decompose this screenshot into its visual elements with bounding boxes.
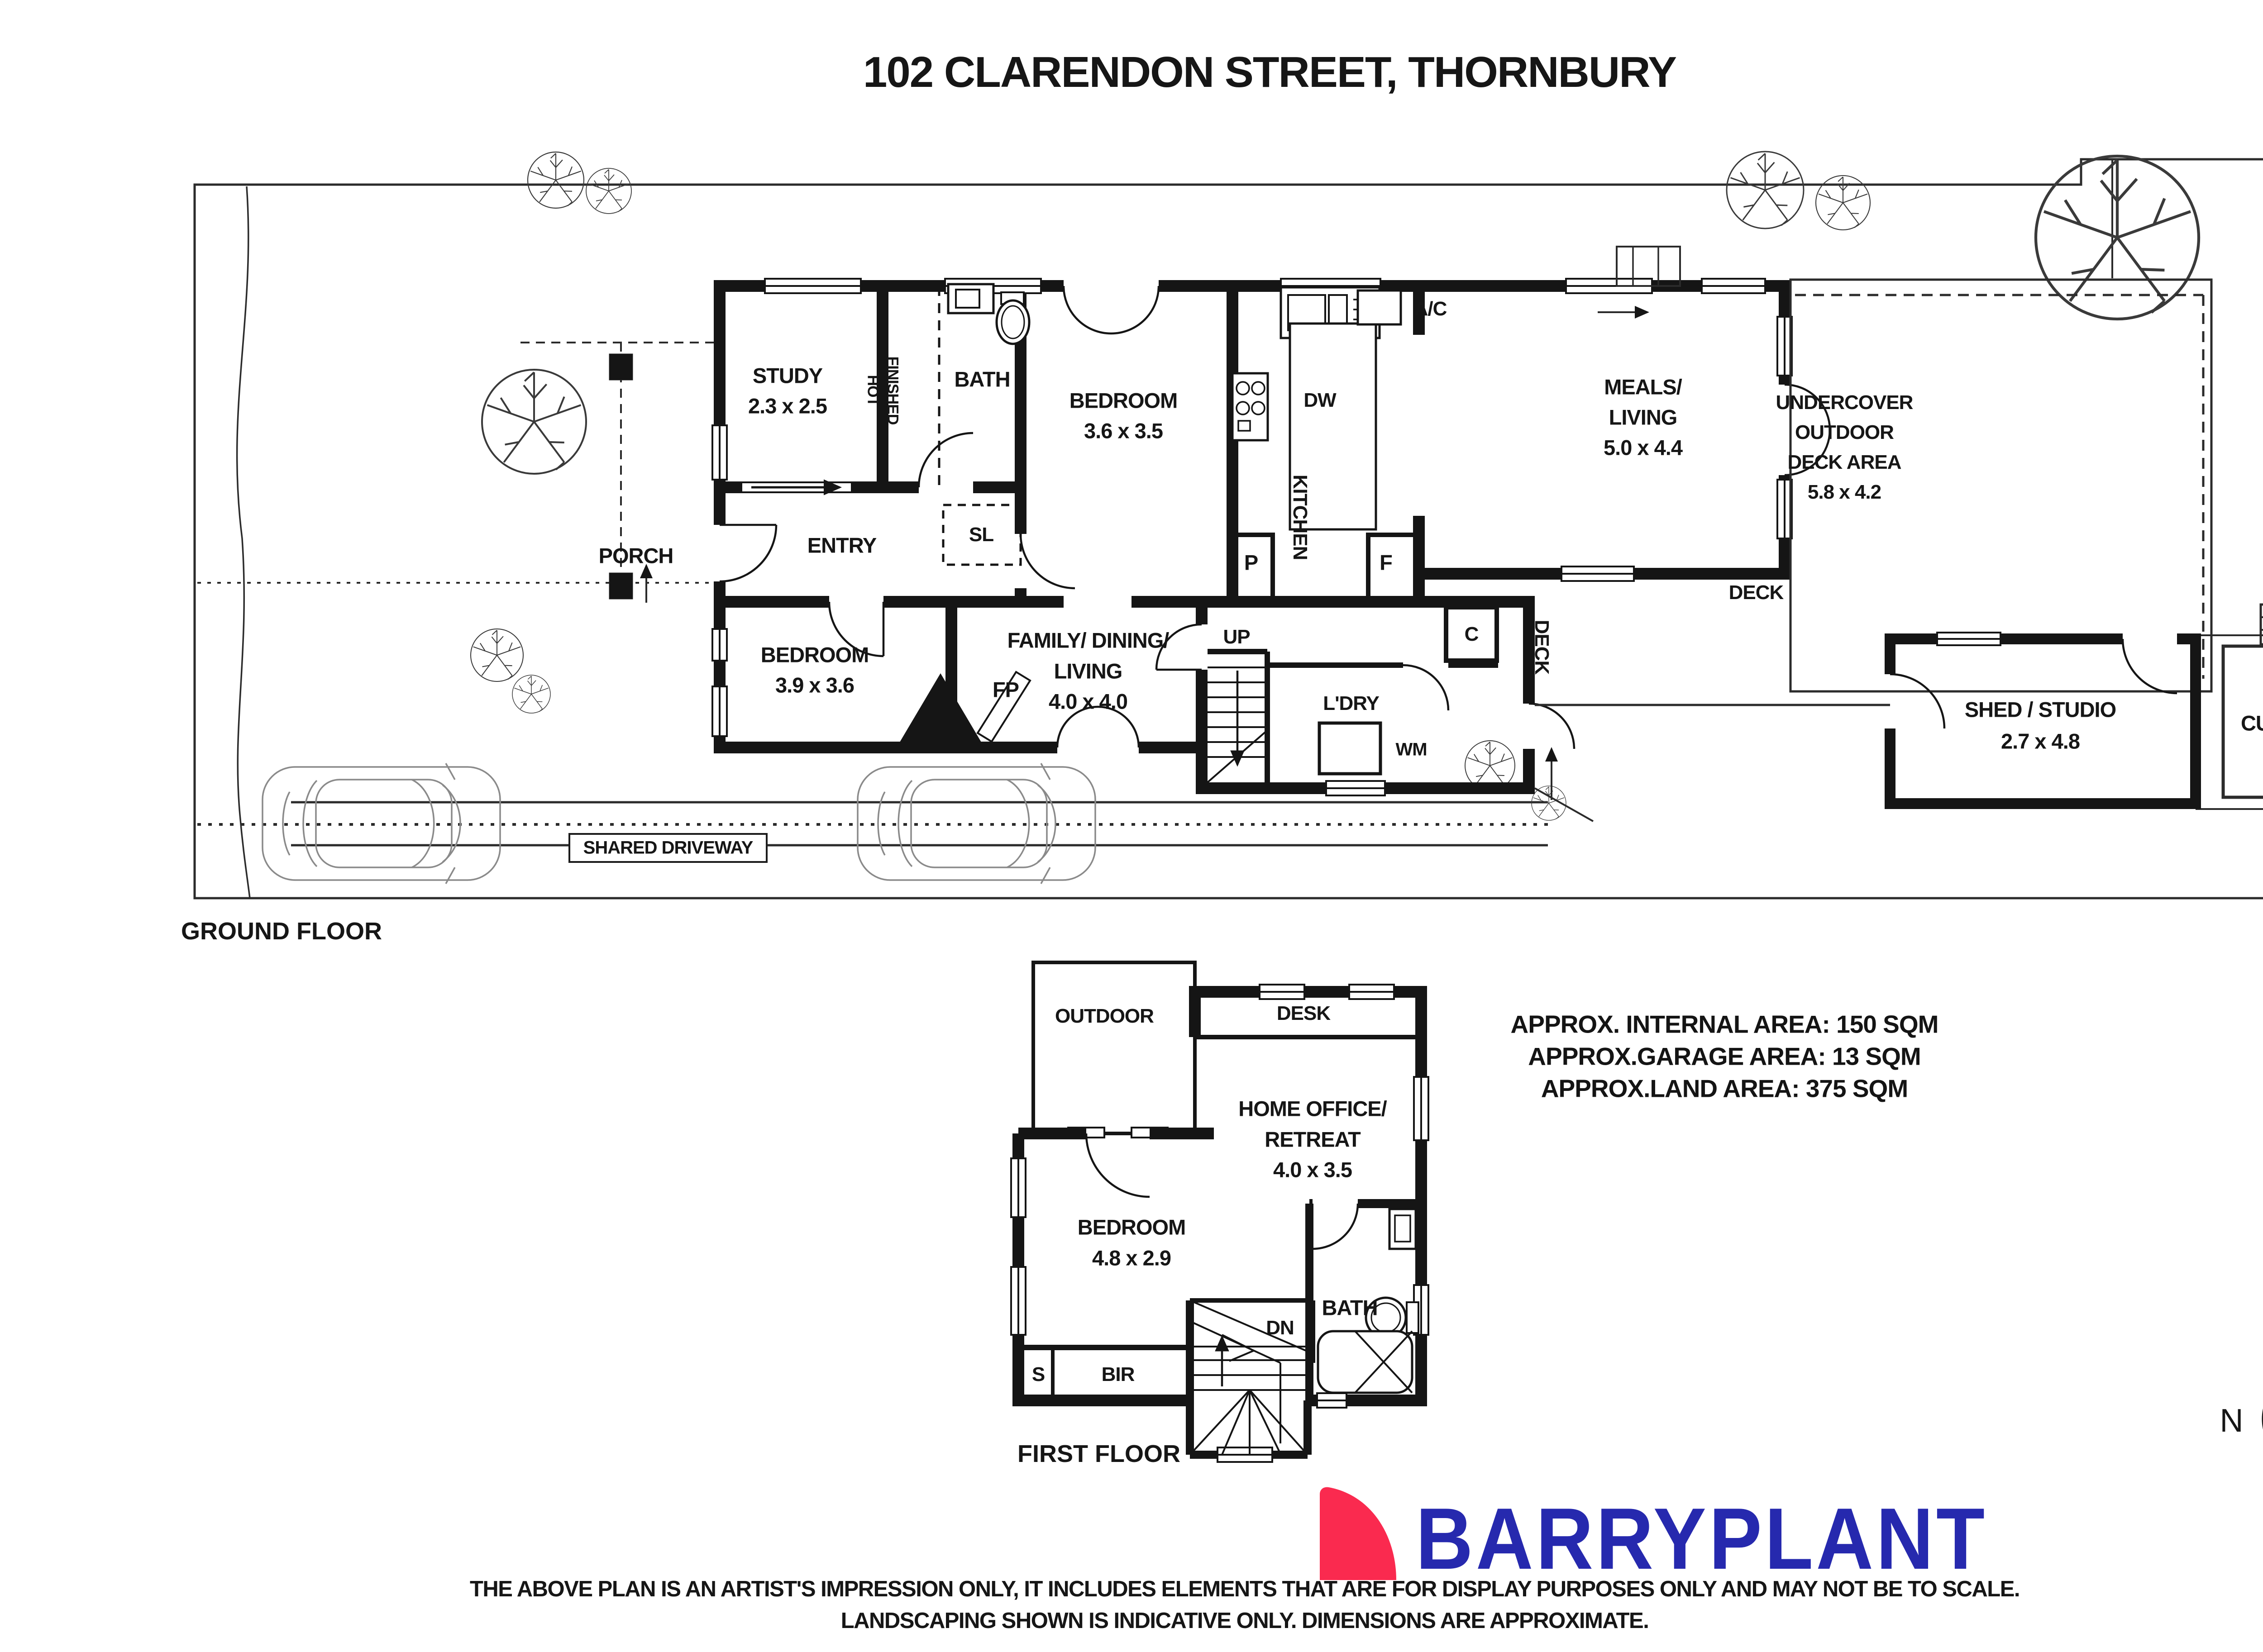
- room-family-line1: FAMILY/ DINING/: [1007, 628, 1169, 653]
- room-study-dims: 2.3 x 2.5: [748, 394, 827, 419]
- room-bedroom3-name: BEDROOM: [1078, 1215, 1185, 1240]
- label-deck-rear: DECK: [1729, 581, 1784, 604]
- room-undercover-line3: DECK AREA: [1788, 451, 1901, 474]
- approx-land-area: APPROX.LAND AREA: 375 SQM: [1511, 1073, 1938, 1105]
- label-shared-driveway: SHARED DRIVEWAY: [583, 838, 753, 858]
- label-dn: DN: [1266, 1317, 1294, 1339]
- ground-stairs: [1208, 667, 1267, 782]
- deck-lines: [1535, 635, 2263, 821]
- room-meals-line2: LIVING: [1609, 405, 1677, 430]
- room-homeoffice-line1: HOME OFFICE/: [1238, 1096, 1386, 1121]
- brand-logo-text: BARRYPLANT: [1416, 1489, 1987, 1589]
- ground-floor-section-label: GROUND FLOOR: [181, 917, 382, 945]
- label-pantry: P: [1244, 550, 1258, 575]
- room-homeoffice-line2: RETREAT: [1265, 1127, 1360, 1152]
- driveway: [197, 802, 1548, 862]
- approx-internal-area: APPROX. INTERNAL AREA: 150 SQM: [1511, 1009, 1938, 1041]
- room-meals-dims: 5.0 x 4.4: [1604, 435, 1682, 460]
- label-fridge: F: [1380, 550, 1392, 575]
- room-study-name: STUDY: [753, 363, 822, 388]
- room-shed-dims: 2.7 x 4.8: [2001, 729, 2080, 754]
- room-homeoffice-dims: 4.0 x 3.5: [1273, 1157, 1352, 1182]
- room-family-dims: 4.0 x 4.0: [1049, 689, 1127, 714]
- label-sl: SL: [969, 524, 993, 546]
- ground-bath-fixtures: [948, 284, 1029, 344]
- room-cubby: CUBBY: [2241, 711, 2263, 736]
- label-ac: A/C: [1414, 298, 1447, 320]
- room-bedroom1-name: BEDROOM: [1069, 388, 1177, 413]
- room-entry: ENTRY: [807, 533, 877, 558]
- label-bir: BIR: [1102, 1363, 1135, 1386]
- label-fp: FP: [993, 677, 1019, 702]
- label-hot: HOT: [864, 375, 882, 406]
- room-shed-name: SHED / STUDIO: [1965, 697, 2116, 722]
- label-up: UP: [1223, 626, 1250, 648]
- compass-north-label: N: [2220, 1402, 2243, 1439]
- approx-areas-block: APPROX. INTERNAL AREA: 150 SQM APPROX.GA…: [1511, 1009, 1938, 1105]
- page-title: 102 CLARENDON STREET, THORNBURY: [863, 48, 1676, 97]
- room-bedroom3-dims: 4.8 x 2.9: [1092, 1246, 1171, 1271]
- room-meals-line1: MEALS/: [1604, 375, 1682, 400]
- room-bedroom2-name: BEDROOM: [761, 643, 869, 667]
- room-bedroom2-dims: 3.9 x 3.6: [775, 673, 854, 698]
- label-finished: FINISHED: [884, 357, 902, 425]
- approx-garage-area: APPROX.GARAGE AREA: 13 SQM: [1511, 1041, 1938, 1073]
- room-bedroom1-dims: 3.6 x 3.5: [1084, 419, 1163, 443]
- first-floor-section-label: FIRST FLOOR: [1017, 1440, 1180, 1468]
- room-undercover-line1: UNDERCOVER: [1776, 391, 1913, 414]
- room-family-line2: LIVING: [1054, 659, 1122, 684]
- room-undercover-line2: OUTDOOR: [1795, 421, 1894, 444]
- room-outdoor: OUTDOOR: [1055, 1005, 1154, 1028]
- label-desk: DESK: [1277, 1002, 1330, 1025]
- logo-red-mark: [1320, 1487, 1396, 1580]
- label-wm: WM: [1395, 740, 1427, 760]
- room-bath-first: BATH: [1322, 1295, 1377, 1320]
- room-bath-ground: BATH: [954, 367, 1010, 392]
- undercover-deck: [1598, 247, 2211, 691]
- label-laundry: L'DRY: [1323, 692, 1379, 715]
- label-dw: DW: [1303, 389, 1336, 412]
- label-s: S: [1032, 1363, 1045, 1386]
- label-deck-side: DECK: [1530, 620, 1553, 675]
- floorplan-linework: [0, 0, 2263, 1652]
- room-undercover-dims: 5.8 x 4.2: [1808, 481, 1881, 504]
- floorplan-page: 102 CLARENDON STREET, THORNBURY STUDY 2.…: [0, 0, 2263, 1652]
- disclaimer-line2: LANDSCAPING SHOWN IS INDICATIVE ONLY. DI…: [841, 1608, 1649, 1633]
- room-kitchen: KITCHEN: [1289, 475, 1311, 560]
- cubby-structure: [2223, 605, 2263, 797]
- label-cupboard: C: [1465, 623, 1479, 646]
- disclaimer-line1: THE ABOVE PLAN IS AN ARTIST'S IMPRESSION…: [470, 1576, 2020, 1602]
- room-porch: PORCH: [599, 543, 673, 568]
